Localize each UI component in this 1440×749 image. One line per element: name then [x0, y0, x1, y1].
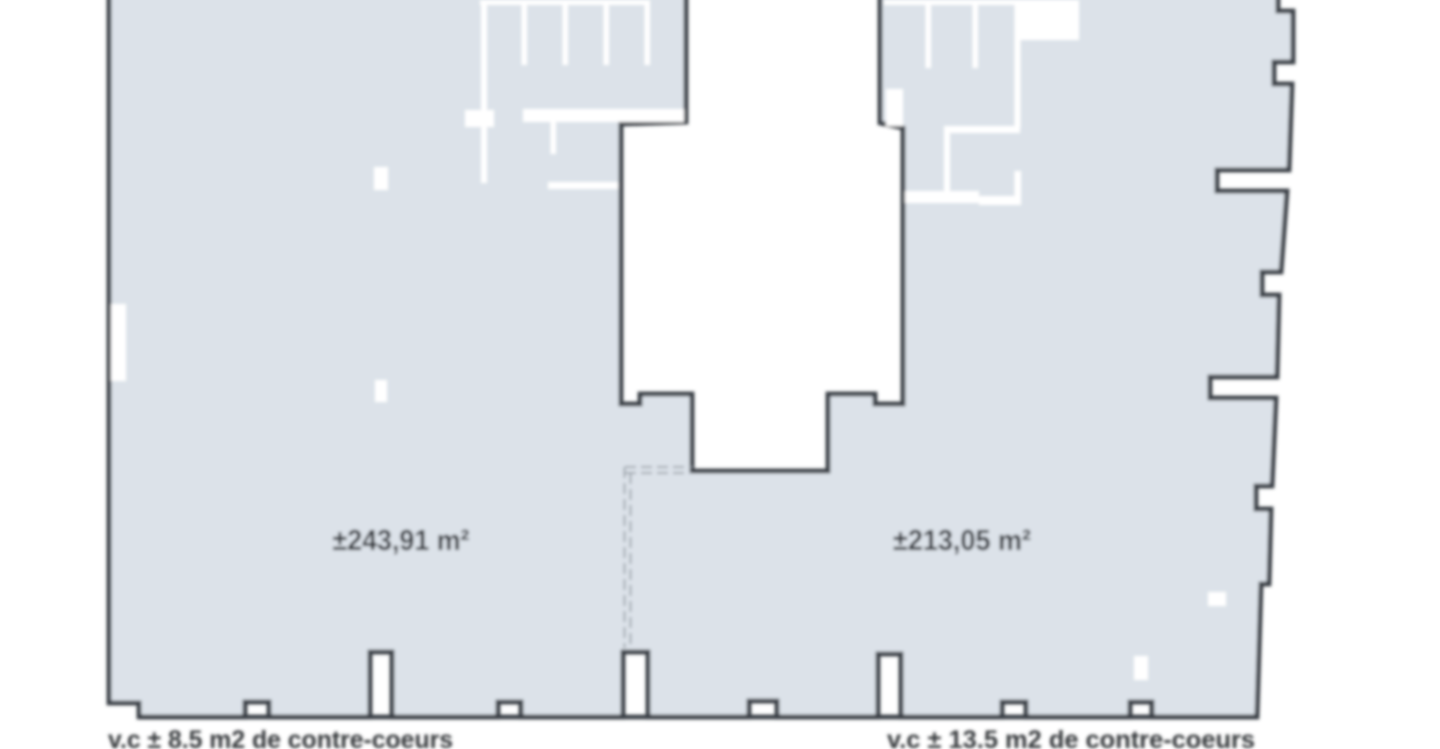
- svg-text:v.c ± 13.5 m2 de contre-coeurs: v.c ± 13.5 m2 de contre-coeurs: [887, 726, 1255, 749]
- svg-text:±213,05 m²: ±213,05 m²: [893, 525, 1031, 557]
- svg-text:±243,91 m²: ±243,91 m²: [333, 525, 470, 557]
- svg-text:v.c ± 8.5 m2 de contre-coeurs: v.c ± 8.5 m2 de contre-coeurs: [108, 726, 453, 749]
